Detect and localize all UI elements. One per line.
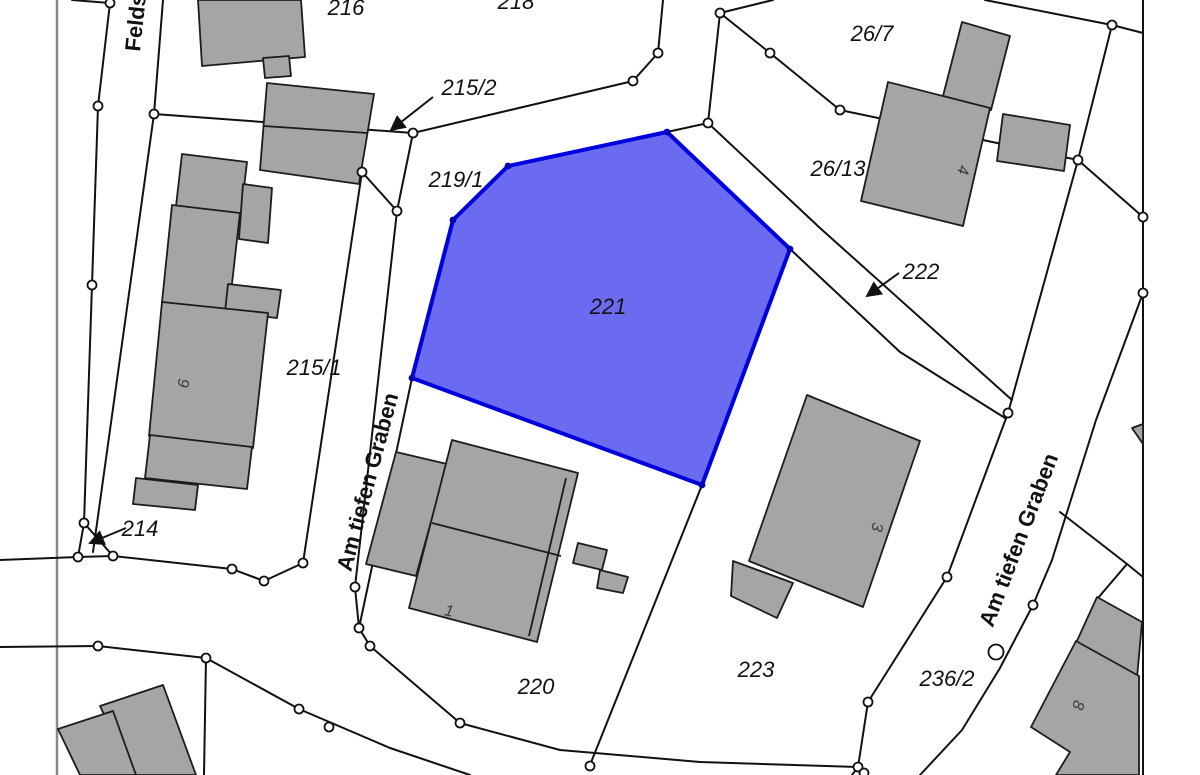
boundary-top-right xyxy=(985,0,1143,33)
building-4-shed xyxy=(997,114,1070,171)
building-215-2 xyxy=(260,83,374,184)
vertex-marker xyxy=(860,769,869,775)
boundary-tie-right-1 xyxy=(1078,160,1143,217)
boundary-220-223 xyxy=(588,485,702,770)
parcel-label-215-1: 215/1 xyxy=(285,355,341,380)
leader-arrow-222 xyxy=(867,273,899,296)
vertex-marker xyxy=(654,49,663,58)
vertex-marker xyxy=(366,642,375,651)
vertex-marker xyxy=(228,565,237,574)
vertex-marker xyxy=(325,723,334,732)
building-9-part5 xyxy=(149,302,268,448)
vertex-marker xyxy=(80,519,89,528)
building-1-shed2 xyxy=(597,570,628,593)
vertex-marker xyxy=(106,0,115,8)
vertex-marker xyxy=(358,168,367,177)
vertex-marker xyxy=(351,583,360,592)
parcel-label-222: 222 xyxy=(902,259,940,284)
vertex-marker xyxy=(299,559,308,568)
vertex-marker xyxy=(1074,156,1083,165)
vertex-marker xyxy=(295,705,304,714)
vertex-marker xyxy=(1108,21,1117,30)
boundary-top-street-east xyxy=(708,0,773,123)
vertex-marker xyxy=(94,642,103,651)
parcel-label-216: 216 xyxy=(327,0,365,20)
vertex-marker xyxy=(409,129,418,138)
parcel-label-219-1: 219/1 xyxy=(427,167,483,192)
street-label-am-tiefen-graben-right: Am tiefen Graben xyxy=(974,450,1063,630)
vertex-marker xyxy=(150,110,159,119)
parcel-label-220: 220 xyxy=(517,674,555,699)
vertex-marker xyxy=(393,207,402,216)
parcel-label-215-2: 215/2 xyxy=(440,75,496,100)
building-9-part2 xyxy=(239,184,272,243)
building-3-main xyxy=(749,395,920,607)
vertex-marker xyxy=(456,719,465,728)
vertex-marker xyxy=(704,119,713,128)
building-9-part1 xyxy=(176,154,247,214)
boundary-junction-tie xyxy=(264,563,303,581)
vertex-marker xyxy=(260,577,269,586)
street-label-feldstrasse: Feldstraße xyxy=(120,0,156,53)
parcel-label-223: 223 xyxy=(737,657,775,682)
building-1-shed1 xyxy=(573,543,607,570)
parcel-label-214: 214 xyxy=(121,516,159,541)
boundary-236-2-south xyxy=(1060,512,1143,577)
boundary-tie-221-top xyxy=(667,123,708,132)
vertex-marker xyxy=(586,762,595,771)
vertex-marker xyxy=(1139,213,1148,222)
vertex-marker xyxy=(836,106,845,115)
cadastral-map: 216 218 215/2 219/1 215/1 221 214 220 22… xyxy=(0,0,1200,775)
boundary-218-south xyxy=(413,0,663,133)
vertex-marker xyxy=(88,281,97,290)
boundary-tie-215 xyxy=(362,172,397,211)
building-4-tower xyxy=(943,22,1010,110)
parcel-label-26-13: 26/13 xyxy=(809,156,866,181)
parcel-label-221: 221 xyxy=(589,294,627,319)
vertex-marker xyxy=(1139,289,1148,298)
survey-point-marker xyxy=(989,645,1004,660)
parcel-label-236-2: 236/2 xyxy=(918,666,974,691)
boundary-curve-north xyxy=(0,556,264,581)
vertex-marker xyxy=(629,77,638,86)
boundary-tie-building8 xyxy=(1098,564,1127,598)
parcel-label-218: 218 xyxy=(497,0,535,14)
leader-arrow-215-2 xyxy=(391,97,433,130)
building-sliver-right xyxy=(1132,424,1143,444)
vertex-marker xyxy=(74,553,83,562)
building-4-main xyxy=(861,82,990,226)
boundary-bottomleft-vertical xyxy=(204,658,206,775)
vertex-marker xyxy=(1004,409,1013,418)
vertex-marker xyxy=(202,654,211,663)
vertex-marker xyxy=(943,573,952,582)
parcel-label-26-7: 26/7 xyxy=(850,21,895,46)
vertex-marker xyxy=(109,552,118,561)
vertex-marker xyxy=(766,49,775,58)
vertex-marker xyxy=(94,102,103,111)
building-216-annex xyxy=(263,56,291,78)
vertex-marker xyxy=(1029,601,1038,610)
vertex-marker xyxy=(355,624,364,633)
vertex-marker xyxy=(716,9,725,18)
vertex-marker xyxy=(864,698,873,707)
